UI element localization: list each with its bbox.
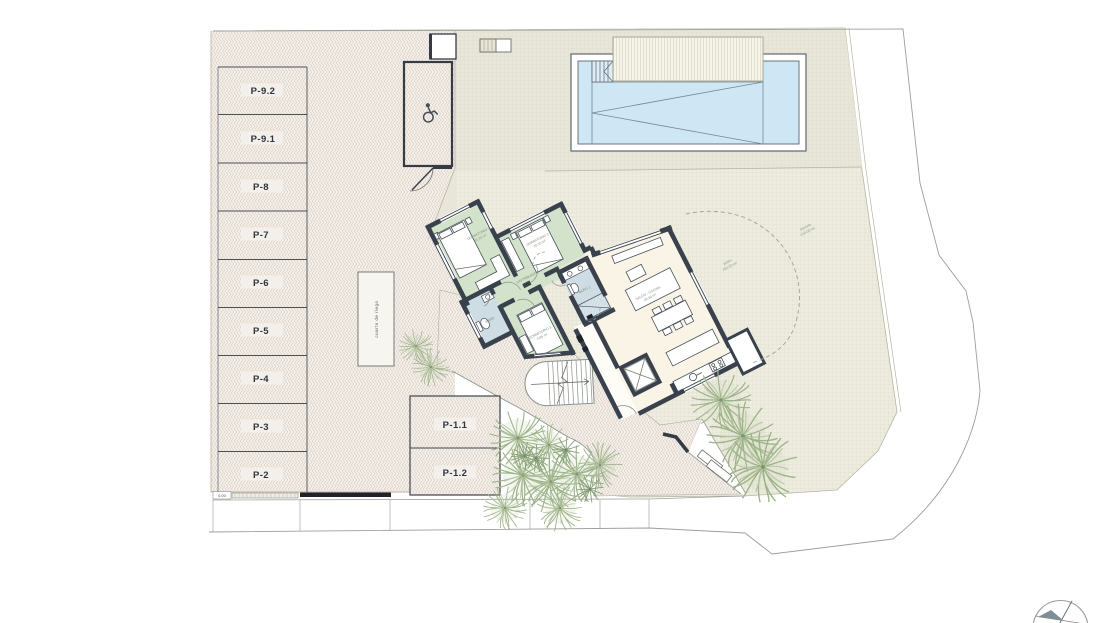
svg-text:P-1.1: P-1.1 <box>443 420 468 431</box>
svg-text:P-3: P-3 <box>253 422 269 433</box>
svg-text:P-5: P-5 <box>253 326 269 337</box>
svg-text:P-7: P-7 <box>253 230 269 241</box>
svg-text:P-8: P-8 <box>253 182 269 193</box>
svg-text:P-9.1: P-9.1 <box>251 134 276 145</box>
svg-text:0.00: 0.00 <box>218 493 227 498</box>
svg-text:P-1.2: P-1.2 <box>443 468 468 479</box>
svg-text:P-6: P-6 <box>253 278 269 289</box>
svg-text:P-9.2: P-9.2 <box>251 86 276 97</box>
svg-text:cuarto de riego: cuarto de riego <box>374 300 379 337</box>
svg-text:P-4: P-4 <box>253 374 269 385</box>
svg-text:P-2: P-2 <box>253 470 269 481</box>
